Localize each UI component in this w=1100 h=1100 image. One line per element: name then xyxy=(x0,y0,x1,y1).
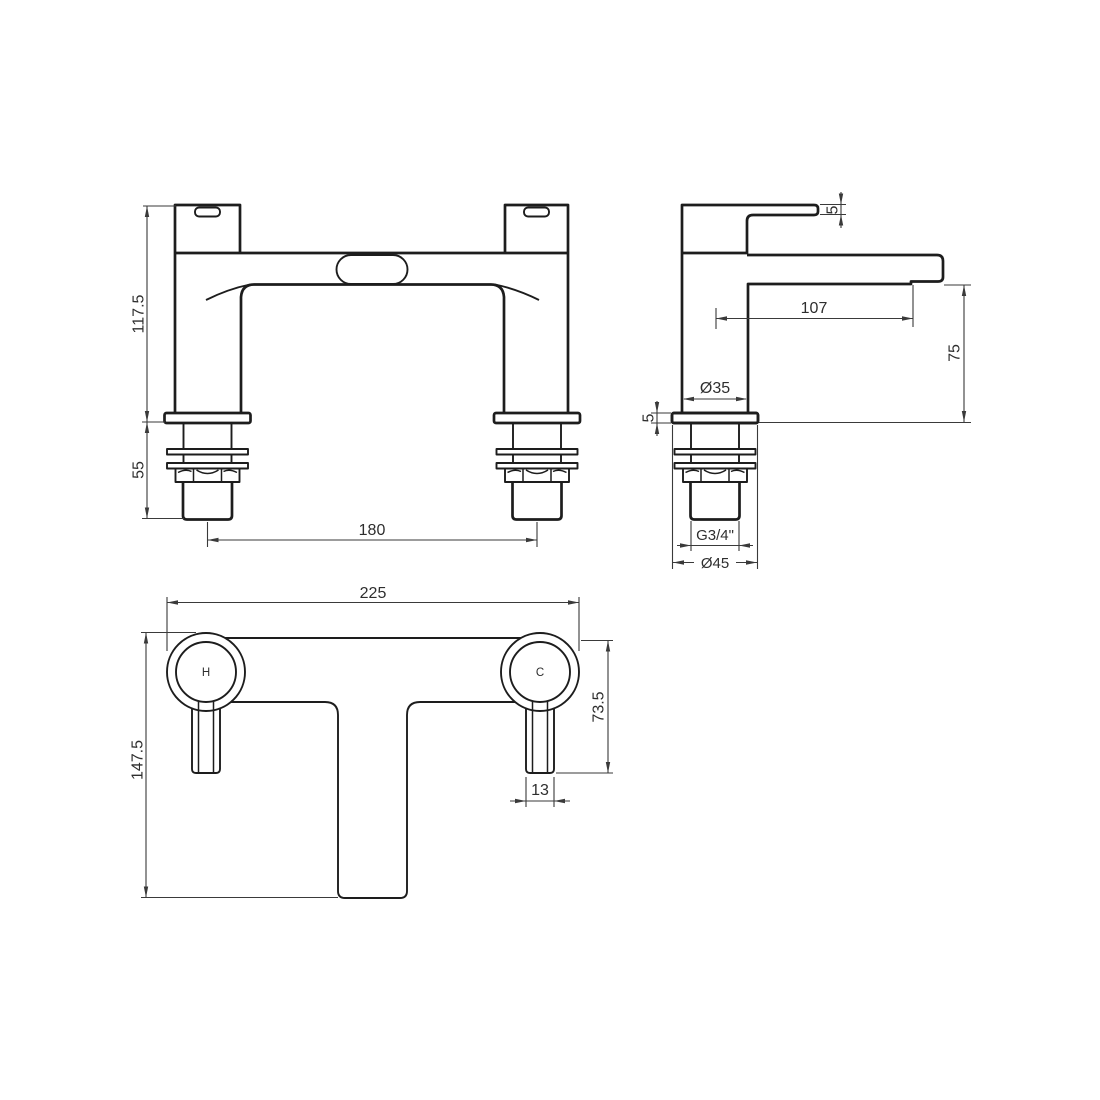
drawing-page: 117.5 55 180 xyxy=(0,0,1100,1100)
front-right-shank xyxy=(494,413,580,520)
dim-label-overall-width: 225 xyxy=(360,585,387,602)
dim-side-spout-reach: 107 xyxy=(716,285,913,329)
technical-drawing-canvas: 117.5 55 180 xyxy=(0,0,1100,1100)
dim-side-thread-size: G3/4" xyxy=(677,521,753,551)
front-crossbar-underside xyxy=(241,285,504,414)
front-left-shank xyxy=(165,413,251,520)
dim-label-front-hole-centres: 180 xyxy=(359,522,386,539)
side-flange xyxy=(672,413,758,423)
dim-label-thread-size: G3/4" xyxy=(696,527,734,544)
front-dimensions: 117.5 55 180 xyxy=(131,206,538,547)
dim-side-flange-diameter: Ø45 xyxy=(673,425,758,572)
front-left-pillar xyxy=(175,205,240,413)
dim-label-body-diameter: Ø35 xyxy=(700,380,730,397)
side-spout xyxy=(747,255,943,413)
dim-plan-lever-width: 13 xyxy=(510,777,570,807)
side-shank xyxy=(672,413,758,520)
dim-label-handle-thickness: 5 xyxy=(825,205,842,214)
plan-cold-lever-inner-lines xyxy=(533,702,548,773)
plan-cold-indicator: C xyxy=(536,667,544,679)
dim-side-body-diameter: Ø35 xyxy=(683,380,747,401)
plan-view-part: H C xyxy=(167,633,579,898)
dim-label-flange-thickness: 5 xyxy=(641,413,658,422)
plan-dimensions: 225 147.5 73.5 13 xyxy=(130,585,614,898)
dim-plan-overall-depth: 147.5 xyxy=(130,633,339,898)
side-view-part xyxy=(672,205,943,520)
dim-front-hole-centres: 180 xyxy=(208,522,538,547)
dim-side-handle-thickness: 5 xyxy=(820,192,846,228)
plan-hot-lever xyxy=(192,708,220,773)
front-spout-opening xyxy=(337,255,408,284)
dim-front-height: 117.5 xyxy=(131,206,177,422)
front-right-swoosh-curve xyxy=(495,285,539,301)
dim-label-front-shank-length: 55 xyxy=(131,461,148,479)
side-view: 5 107 75 Ø35 xyxy=(641,192,972,572)
front-right-pillar xyxy=(505,205,568,413)
dim-label-spout-height: 75 xyxy=(947,344,964,362)
front-right-handle-slot xyxy=(524,208,549,217)
front-view-part xyxy=(165,205,581,520)
dim-side-spout-height: 75 xyxy=(759,285,971,423)
plan-bar-and-spout xyxy=(231,702,515,898)
front-left-swoosh-curve xyxy=(206,285,250,301)
dim-label-flange-diameter: Ø45 xyxy=(701,555,729,572)
dim-label-overall-depth: 147.5 xyxy=(130,740,147,780)
dim-plan-handle-projection: 73.5 xyxy=(556,641,613,774)
dim-label-lever-width: 13 xyxy=(531,782,549,799)
dim-label-spout-reach: 107 xyxy=(801,300,828,317)
dim-side-flange-thickness: 5 xyxy=(641,401,672,436)
dim-label-handle-projection: 73.5 xyxy=(591,691,608,722)
plan-cold-lever xyxy=(526,708,554,773)
front-left-handle-slot xyxy=(195,208,220,217)
front-view: 117.5 55 180 xyxy=(131,205,581,547)
plan-view: H C 225 147.5 73.5 xyxy=(130,585,614,898)
plan-hot-lever-inner-lines xyxy=(199,702,214,773)
dim-label-front-height: 117.5 xyxy=(131,294,148,333)
plan-hot-indicator: H xyxy=(202,667,210,679)
